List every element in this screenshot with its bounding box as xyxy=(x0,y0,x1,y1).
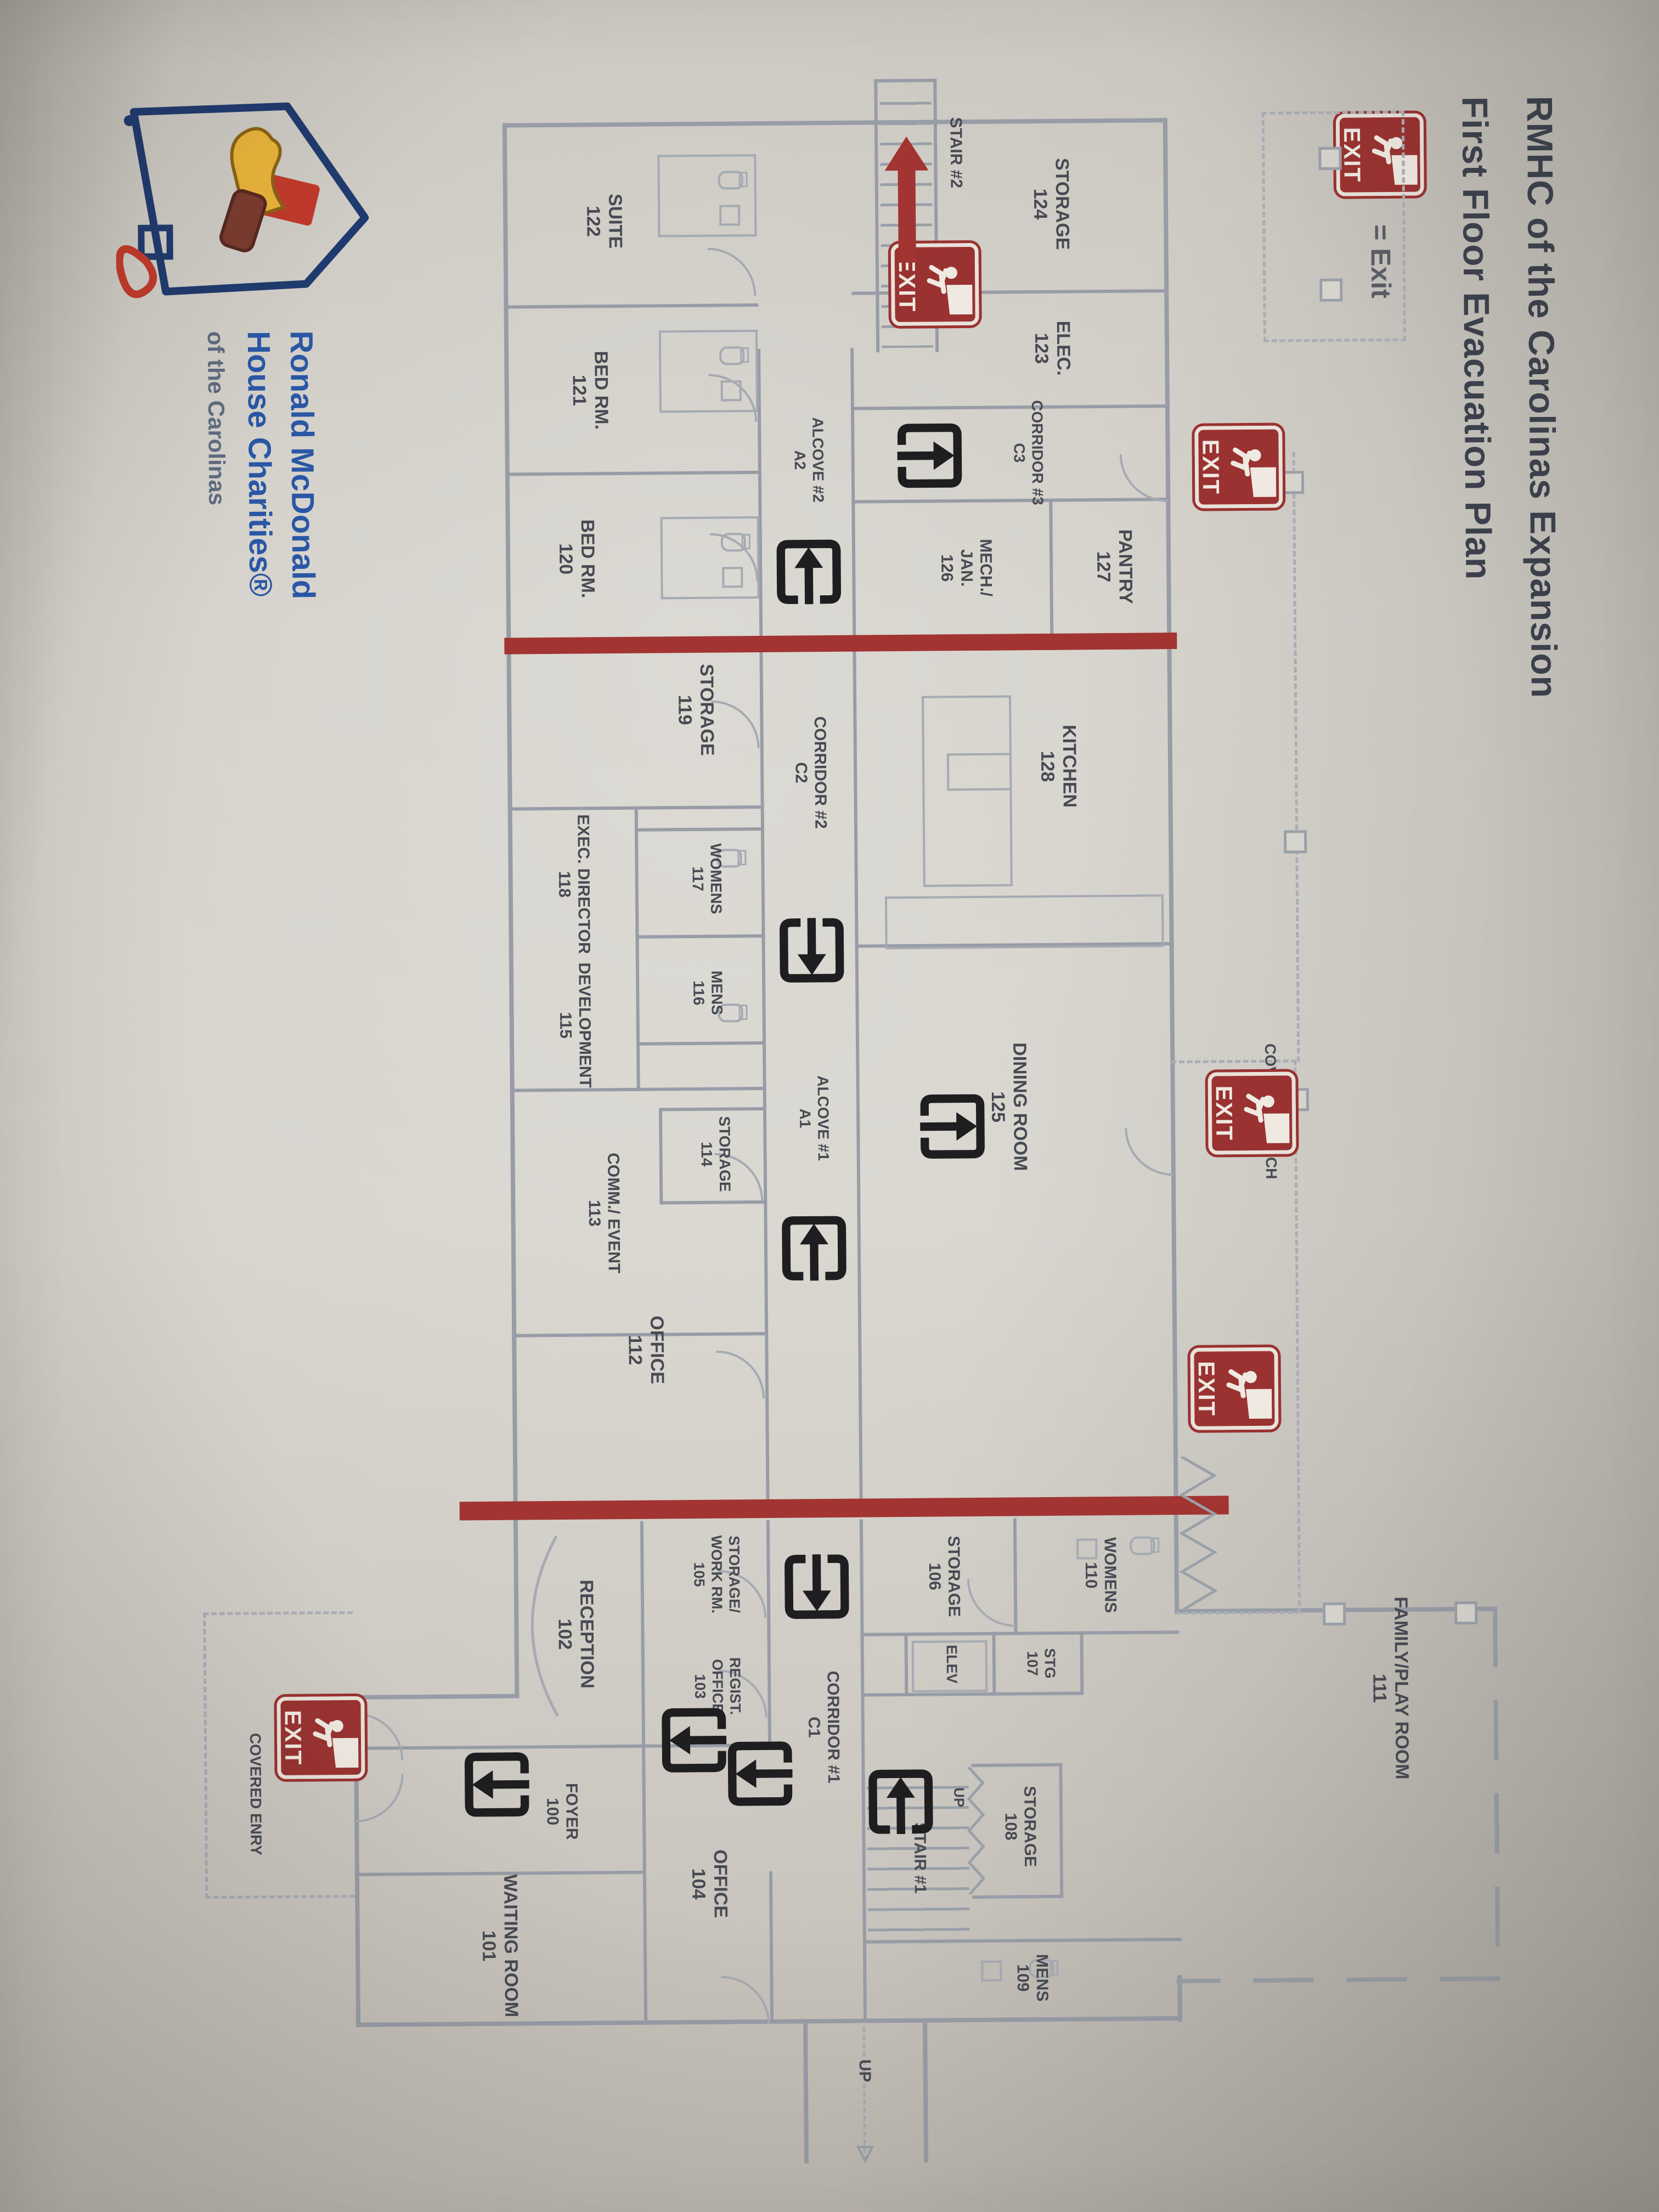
fire-wall xyxy=(504,633,1177,654)
wall xyxy=(862,1630,1179,1637)
photo-of-evacuation-plan: RMHC of the Carolinas Expansion First Fl… xyxy=(0,0,1659,2212)
room-label-development-115: DEVELOPMENT115 xyxy=(555,962,595,1088)
route-arrow-corridor1-south-icon xyxy=(727,1741,793,1807)
exit-sign-text: EXIT xyxy=(1195,1361,1218,1417)
room-label-stg-107: STG107 xyxy=(1023,1648,1058,1679)
door-swing xyxy=(721,1976,770,2024)
toilet-fixture xyxy=(1130,1536,1155,1555)
room-label-corridor-3: CORRIDOR #3C3 xyxy=(1010,400,1047,505)
wall xyxy=(635,806,640,1089)
room-label-storage-108: STORAGE108 xyxy=(1000,1786,1040,1867)
wall xyxy=(923,2023,928,2163)
room-label-mech-jan-126: MECH./JAN.126 xyxy=(937,539,996,597)
wall xyxy=(353,1694,519,1700)
route-arrow-foyer-icon xyxy=(464,1752,529,1817)
logo-org-line2: House Charities® xyxy=(236,331,281,600)
column xyxy=(1281,471,1304,494)
sink-fixture xyxy=(981,1961,1002,1982)
room-label-office-104: OFFICE104 xyxy=(687,1849,731,1918)
plan-title-line2: First Floor Evacuation Plan xyxy=(1457,96,1498,699)
route-arrow-stair1-icon xyxy=(868,1769,933,1835)
route-arrows-layer xyxy=(1639,0,1657,2194)
wall xyxy=(862,1691,1082,1696)
wall xyxy=(860,1520,867,2022)
wall xyxy=(1049,499,1053,637)
wall xyxy=(355,1875,360,2027)
bifold-doors xyxy=(966,1767,986,1894)
room-label-womens-110: WOMENS110 xyxy=(1081,1537,1120,1613)
wall xyxy=(642,1746,647,2023)
wall xyxy=(503,123,518,1506)
exit-sign-text: EXIT xyxy=(1212,1086,1236,1142)
room-label-mens-116: MENS116 xyxy=(690,970,726,1015)
ramp-up-label: UP xyxy=(855,2059,874,2083)
window-wall xyxy=(1176,1977,1500,1984)
ramp-arrow xyxy=(856,2145,874,2163)
stair1-up-label: UP xyxy=(950,1787,967,1807)
door-swing xyxy=(708,247,757,296)
room-label-storage-119: STORAGE119 xyxy=(673,664,718,756)
window-wall xyxy=(1493,1607,1500,1981)
exit-sign-porch-east: EXIT xyxy=(1190,1347,1278,1430)
column xyxy=(1318,147,1341,170)
porch-screen-zigzag xyxy=(1178,1457,1218,1611)
door-swing xyxy=(355,1774,404,1822)
room-label-womens-117: WOMENS117 xyxy=(689,843,725,915)
bath-pod xyxy=(657,154,757,237)
logo-org-line1: Ronald McDonald xyxy=(280,330,325,599)
column xyxy=(1454,1601,1477,1624)
door-swing xyxy=(967,1578,1016,1627)
room-label-suite-122: SUITE122 xyxy=(582,194,627,249)
room-label-corridor-2: CORRIDOR #2C2 xyxy=(791,716,830,830)
wall xyxy=(503,118,1167,128)
route-arrow-corridor2-east-icon xyxy=(779,918,844,983)
route-arrow-office-corridor-icon xyxy=(782,1216,847,1281)
door-swing xyxy=(1120,454,1169,503)
room-label-storage-124: STORAGE124 xyxy=(1029,158,1074,250)
plan-title: RMHC of the Carolinas Expansion First Fl… xyxy=(1429,96,1563,699)
wall xyxy=(904,1633,908,1696)
door-swing xyxy=(711,700,760,749)
kitchen-island-inner xyxy=(947,753,1012,791)
covered-entry-label: COVERED ENRY xyxy=(246,1733,265,1855)
porch-outline xyxy=(1262,111,1406,342)
room-label-waiting-101: WAITING ROOM101 xyxy=(477,1874,522,2017)
porch-edge-line xyxy=(1293,452,1300,1062)
room-label-stair-2: STAIR #2 xyxy=(946,117,966,188)
exit-sign-covered-entry: EXIT xyxy=(276,1696,365,1779)
wall xyxy=(509,471,760,476)
wall xyxy=(972,1895,1063,1899)
wall xyxy=(507,303,758,309)
route-arrow-stair2-icon xyxy=(880,137,934,263)
wall xyxy=(659,1108,663,1204)
kitchen-counter xyxy=(885,894,1164,949)
paper-sheet: RMHC of the Carolinas Expansion First Fl… xyxy=(0,0,1659,2212)
column xyxy=(1323,1602,1346,1626)
exit-sign-text: EXIT xyxy=(281,1710,305,1766)
wall xyxy=(1059,1763,1063,1898)
route-arrow-corridor1-foyer-icon xyxy=(662,1708,727,1773)
rmhc-logo-text: Ronald McDonald House Charities® of the … xyxy=(117,330,377,601)
room-label-alcove-1: ALCOVE #1A1 xyxy=(795,1075,832,1161)
route-arrow-alcove1-icon xyxy=(920,1094,985,1159)
rmhc-logo: Ronald McDonald House Charities® of the … xyxy=(115,86,376,601)
toilet-fixture xyxy=(721,533,746,551)
rmhc-house-icon xyxy=(115,86,374,308)
wall xyxy=(875,78,936,82)
wall xyxy=(1080,1631,1084,1695)
room-label-storage-114: STORAGE114 xyxy=(697,1116,734,1192)
room-label-corridor-1: CORRIDOR #1C1 xyxy=(804,1671,843,1784)
exit-sign-text: EXIT xyxy=(895,257,919,313)
exit-signs-layer: EXITEXITEXITEXITEXIT xyxy=(1639,0,1657,2194)
column xyxy=(1319,279,1342,302)
room-label-regist-103: REGIST.OFFICE103 xyxy=(691,1657,743,1716)
room-label-alcove-2: ALCOVE #2A2 xyxy=(791,417,827,503)
exit-sign-covered-porch: EXIT xyxy=(1207,1071,1296,1154)
wall xyxy=(803,2023,809,2163)
room-label-bed-121: BED RM.121 xyxy=(568,351,612,430)
wall xyxy=(638,1041,764,1046)
room-label-dining-125: DINING ROOM125 xyxy=(986,1042,1031,1171)
wall xyxy=(637,934,763,939)
wall xyxy=(992,1632,996,1696)
room-label-exec-118: EXEC. DIRECTOR118 xyxy=(554,814,594,954)
logo-org-line3: of the Carolinas xyxy=(202,331,231,600)
room-label-comm-event-113: COMM./ EVENT113 xyxy=(584,1153,624,1274)
room-labels-layer: STORAGE124ELEC.123CORRIDOR #3C3PANTRY127… xyxy=(1639,0,1657,2194)
room-label-storage-106: STORAGE106 xyxy=(924,1536,964,1617)
toilet-fixture xyxy=(718,171,743,189)
room-label-reception-102: RECEPTION102 xyxy=(554,1579,599,1689)
toilet-fixture xyxy=(719,346,744,365)
fire-wall xyxy=(460,1496,1229,1520)
sink-fixture xyxy=(721,380,742,401)
room-label-mens-109: MENS109 xyxy=(1013,1954,1052,2002)
route-arrow-corridor3-icon xyxy=(897,423,962,488)
room-label-bed-120: BED RM.120 xyxy=(554,520,599,599)
door-swing xyxy=(1125,1127,1173,1176)
column xyxy=(1284,830,1307,853)
kitchen-island xyxy=(922,695,1013,887)
floor-plan-canvas: RMHC of the Carolinas Expansion First Fl… xyxy=(0,0,1657,2208)
room-label-family-play-111: FAMILY/PLAY ROOM111 xyxy=(1368,1596,1413,1780)
room-label-elev: ELEV xyxy=(943,1645,960,1684)
route-arrow-alcove2-icon xyxy=(776,539,842,605)
room-label-storage-work-105: STORAGE/WORK RM.105 xyxy=(690,1535,743,1613)
wall xyxy=(769,1871,774,2022)
plan-title-line1: RMHC of the Carolinas Expansion xyxy=(1522,96,1563,699)
door-swing xyxy=(716,1350,765,1399)
wall xyxy=(640,1521,645,1748)
wall xyxy=(636,827,763,832)
route-arrow-corridor1-west-icon xyxy=(784,1554,849,1620)
room-label-elec-123: ELEC.123 xyxy=(1030,320,1075,376)
room-label-office-112: OFFICE112 xyxy=(624,1316,668,1384)
exit-sign-text: EXIT xyxy=(1199,439,1222,495)
room-label-foyer-100: FOYER100 xyxy=(542,1783,582,1840)
room-label-kitchen-128: KITCHEN128 xyxy=(1036,725,1080,808)
exit-sign-north-porch: EXIT xyxy=(1194,426,1283,509)
sink-fixture xyxy=(722,567,743,588)
plan-structure-layer xyxy=(1639,0,1657,2194)
room-label-pantry-127: PANTRY127 xyxy=(1092,529,1137,605)
sink-fixture xyxy=(719,205,740,225)
wall xyxy=(850,348,863,1502)
wall xyxy=(661,1107,765,1111)
porch-edge-line xyxy=(862,2027,866,2162)
